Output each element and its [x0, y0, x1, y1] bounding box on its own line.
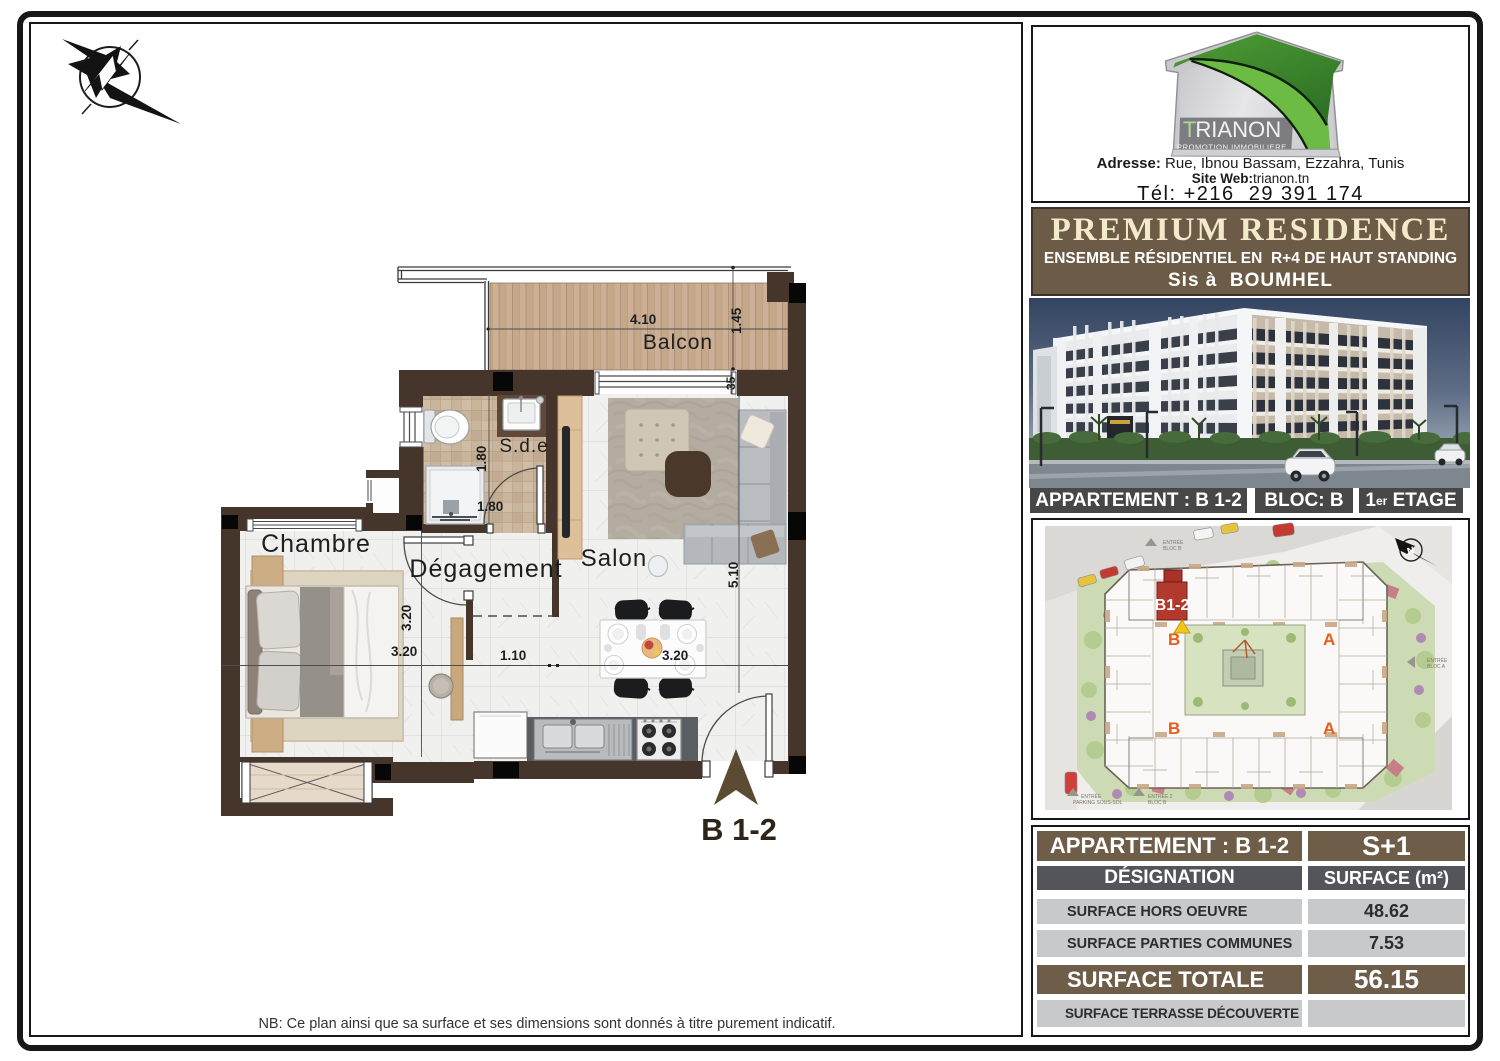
svg-text:BLOC A: BLOC A [1427, 664, 1446, 670]
svg-text:1.10: 1.10 [500, 648, 526, 663]
svg-text:A: A [1323, 630, 1335, 649]
svg-text:B: B [1168, 719, 1180, 738]
svg-text:BLOC B: BLOC B [1148, 800, 1167, 806]
svg-text:5.10: 5.10 [726, 562, 741, 588]
svg-text:1.45: 1.45 [729, 307, 744, 334]
svg-text:B: B [1168, 630, 1180, 649]
svg-text:BLOC B: BLOC B [1163, 546, 1182, 552]
svg-text:B 1-2: B 1-2 [701, 812, 777, 847]
svg-text:T: T [1183, 117, 1197, 142]
svg-text:Salon: Salon [581, 545, 647, 572]
svg-text:4.10: 4.10 [630, 312, 656, 327]
svg-text:NB: Ce plan ainsi que sa surfa: NB: Ce plan ainsi que sa surface et ses … [258, 1016, 835, 1032]
svg-text:PARKING SOUS-SOL: PARKING SOUS-SOL [1073, 800, 1123, 806]
svg-text:RIANON: RIANON [1195, 117, 1281, 142]
svg-text:ENTRÉE: ENTRÉE [1427, 657, 1448, 664]
svg-text:1.80: 1.80 [474, 446, 489, 472]
svg-text:Chambre: Chambre [261, 530, 371, 558]
svg-text:ENTRÉE: ENTRÉE [1081, 793, 1102, 800]
svg-text:A: A [1323, 719, 1335, 738]
svg-text:Dégagement: Dégagement [409, 555, 562, 583]
svg-text:3.20: 3.20 [391, 644, 417, 659]
svg-text:3.20: 3.20 [399, 605, 414, 631]
svg-text:3.20: 3.20 [662, 648, 688, 663]
svg-text:35: 35 [724, 376, 738, 390]
svg-text:1.80: 1.80 [477, 499, 503, 514]
svg-text:B1-2: B1-2 [1155, 597, 1190, 614]
svg-text:S.d.e: S.d.e [499, 436, 548, 457]
svg-text:ENTRÉE: ENTRÉE [1163, 539, 1184, 546]
svg-text:Balcon: Balcon [643, 331, 713, 354]
svg-text:ENTRÉE 2: ENTRÉE 2 [1148, 793, 1173, 800]
